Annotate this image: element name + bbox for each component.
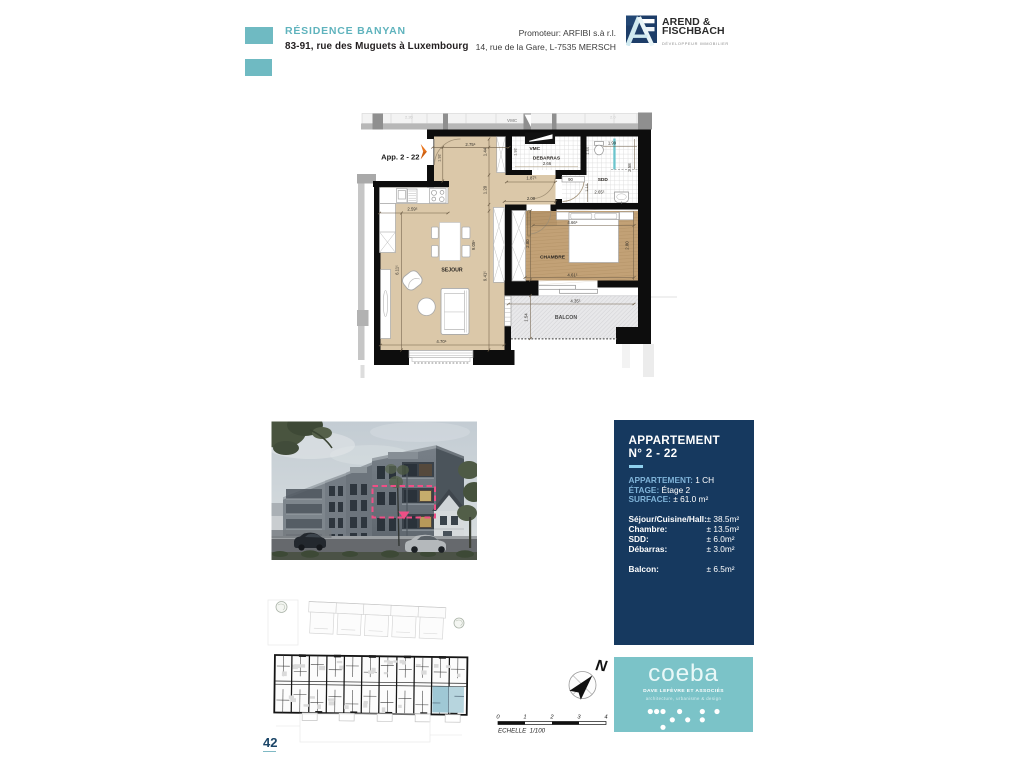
svg-text:2.59⁵: 2.59⁵ [407,207,417,212]
svg-text:ECHELLE 1/100: ECHELLE 1/100 [498,728,546,735]
svg-text:2.65⁵: 2.65⁵ [594,190,604,195]
svg-text:N: N [594,657,608,676]
svg-text:2.0: 2.0 [610,115,616,120]
svg-text:4.61⁵: 4.61⁵ [567,273,577,278]
svg-text:DEBARRAS: DEBARRAS [533,156,561,162]
svg-text:VMC: VMC [507,118,518,123]
svg-text:0: 0 [496,715,500,721]
svg-text:SDD: SDD [598,177,609,183]
svg-text:2.80: 2.80 [625,241,630,250]
svg-text:1: 1 [523,715,526,721]
svg-text:2.20: 2.20 [405,115,414,120]
svg-text:6.11⁵: 6.11⁵ [395,265,400,275]
svg-text:4.66⁵: 4.66⁵ [567,220,577,225]
svg-text:9.41⁵: 9.41⁵ [483,271,488,281]
svg-text:9.05⁵: 9.05⁵ [471,240,476,250]
svg-text:3: 3 [577,715,581,721]
svg-text:1.87⁵: 1.87⁵ [526,176,536,181]
svg-text:1.92: 1.92 [437,154,441,161]
svg-text:2.80: 2.80 [525,239,530,248]
svg-text:1.54: 1.54 [524,313,529,322]
svg-text:90: 90 [568,177,573,182]
svg-text:1.44: 1.44 [482,147,487,156]
svg-text:4.70⁵: 4.70⁵ [436,339,446,344]
svg-text:1.44: 1.44 [586,147,590,154]
svg-text:1.92: 1.92 [514,148,518,155]
svg-text:2: 2 [549,715,554,721]
svg-text:2.66: 2.66 [543,161,552,166]
svg-text:2.75⁵: 2.75⁵ [465,142,475,147]
svg-text:1.20: 1.20 [483,185,488,194]
svg-text:2.00: 2.00 [527,196,536,201]
svg-text:4.35⁵: 4.35⁵ [570,299,580,304]
svg-text:1.14: 1.14 [585,184,589,191]
svg-text:App. 2 - 22: App. 2 - 22 [381,152,419,161]
svg-text:BALCON: BALCON [555,315,577,321]
svg-text:VMC: VMC [529,146,540,152]
svg-text:SEJOUR: SEJOUR [441,268,463,274]
svg-text:4: 4 [604,715,607,721]
svg-text:2.58: 2.58 [627,163,632,172]
svg-text:1.99: 1.99 [608,141,617,146]
svg-text:CHAMBRE: CHAMBRE [540,255,566,261]
